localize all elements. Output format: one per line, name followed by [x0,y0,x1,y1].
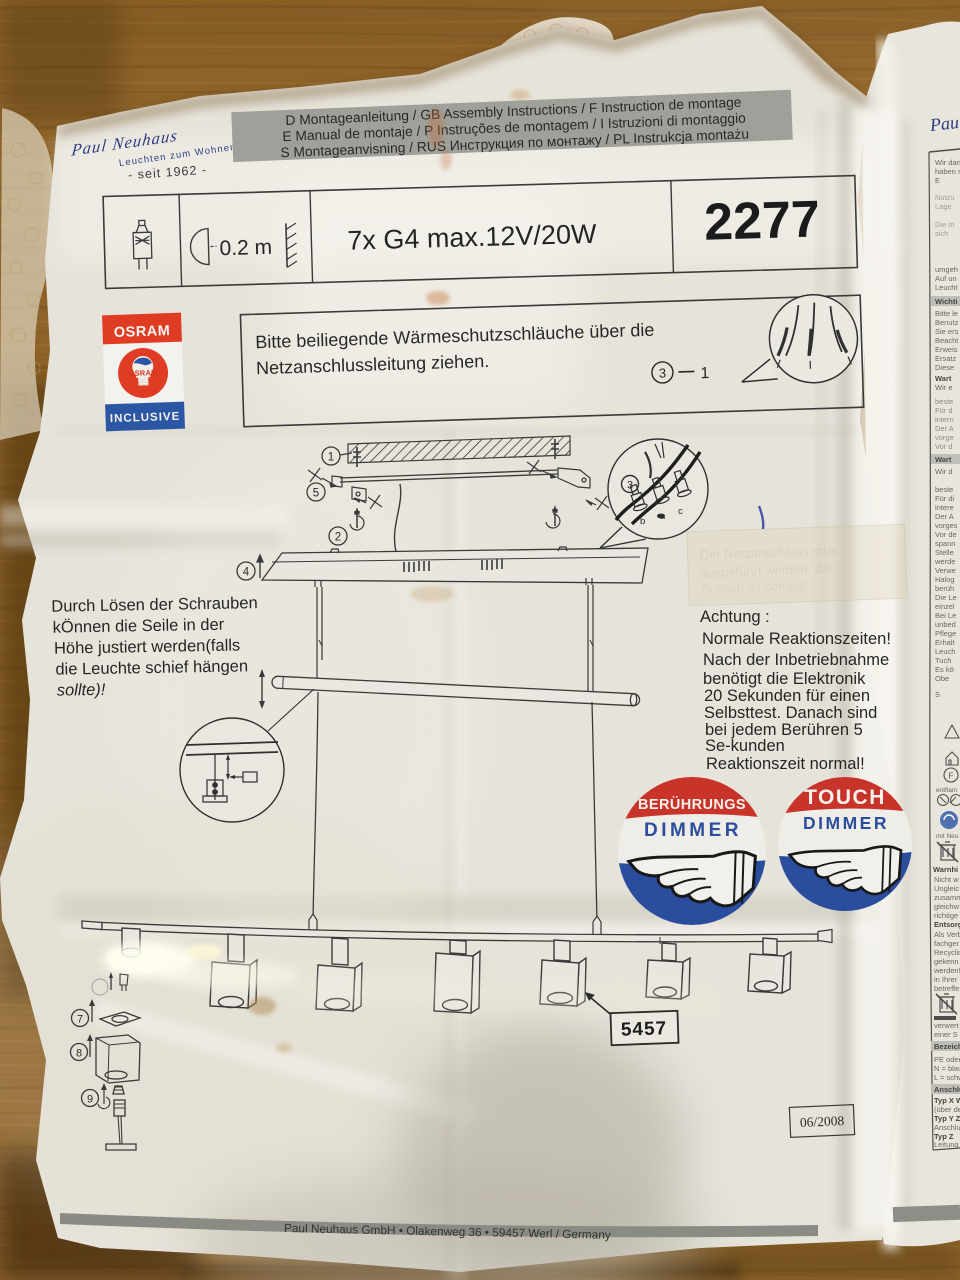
svg-text:c: c [678,506,683,517]
svg-text:2277: 2277 [703,191,820,252]
svg-text:Für d: Für d [935,406,953,415]
svg-text:berüh: berüh [935,584,954,593]
svg-text:1: 1 [700,365,710,382]
svg-text:Erhalt: Erhalt [935,638,956,647]
svg-text:Nach der Inbetriebnahme: Nach der Inbetriebnahme [703,651,889,669]
svg-text:Sie ers: Sie ers [935,327,959,336]
svg-text:OSRAM: OSRAM [114,323,171,341]
svg-text:Selbsttest. Danach sind: Selbsttest. Danach sind [704,704,877,722]
svg-text:Benutz: Benutz [935,318,959,327]
svg-text:vorge: vorge [935,433,954,442]
svg-text:spann: spann [935,539,955,548]
svg-text:S: S [935,690,940,699]
svg-text:einzel: einzel [935,602,955,611]
svg-text:intere: intere [935,503,954,512]
svg-text:Anschlu: Anschlu [934,1085,960,1094]
svg-text:Beacht: Beacht [935,336,959,345]
svg-text:haben s: haben s [935,167,960,176]
svg-text:OSRAM: OSRAM [128,368,157,378]
svg-text:Warnhi: Warnhi [933,865,958,874]
svg-text:betreffe: betreffe [934,984,959,993]
svg-text:Leitung: Leitung [934,1140,959,1149]
svg-text:7: 7 [77,1014,83,1026]
svg-text:8: 8 [76,1048,82,1060]
svg-text:fachger: fachger [934,939,960,948]
svg-text:Die Le: Die Le [935,593,957,602]
svg-text:Recyclin: Recyclin [934,948,960,957]
svg-text:Normale Reaktionszeiten!: Normale Reaktionszeiten! [702,630,891,648]
svg-text:Ersatz: Ersatz [935,354,957,363]
svg-text:verwert: verwert [934,1021,960,1030]
svg-text:Es kö: Es kö [935,665,954,674]
svg-text:Für di: Für di [935,494,955,503]
svg-text:Typ Y Z: Typ Y Z [934,1114,960,1123]
svg-text:Bitte le: Bitte le [935,309,958,318]
svg-text:Durch Lösen der Schrauben: Durch Lösen der Schrauben [51,594,258,616]
svg-text:Se-kunden: Se-kunden [705,737,785,755]
svg-text:b: b [640,516,645,527]
svg-text:Diese: Diese [935,363,954,372]
svg-text:zusamm: zusamm [934,893,960,902]
svg-text:3: 3 [659,365,667,380]
svg-text:Stelle: Stelle [935,548,954,557]
svg-text:Wart: Wart [935,374,952,383]
svg-text:Der A: Der A [935,512,954,521]
svg-text:benötigt die Elektronik: benötigt die Elektronik [703,670,866,688]
svg-text:2: 2 [335,532,341,544]
svg-text:Pau: Pau [928,112,960,135]
svg-text:werden!: werden! [933,966,960,975]
svg-text:beste: beste [935,397,953,406]
svg-text:DIMMER: DIMMER [803,813,889,833]
svg-text:Lage: Lage [935,202,952,211]
svg-text:entflam: entflam [936,787,957,794]
svg-text:9: 9 [87,1094,93,1106]
svg-text:Wart: Wart [935,455,952,464]
svg-text:beste: beste [935,485,953,494]
svg-text:Pflege: Pflege [935,629,956,638]
svg-text:Vor de: Vor de [935,530,957,539]
svg-text:sich: sich [935,229,948,238]
svg-text:Verwe: Verwe [935,566,956,575]
svg-text:mit Neu: mit Neu [936,833,959,840]
svg-text:Vor d: Vor d [935,442,953,451]
svg-text:(über de: (über de [934,1105,960,1114]
svg-text:Erweis: Erweis [935,345,958,354]
svg-text:Ungleic: Ungleic [934,884,959,893]
svg-text:Bezeich: Bezeich [934,1042,960,1051]
svg-text:Wir dan: Wir dan [935,158,960,167]
svg-text:in Ihrer: in Ihrer [934,975,958,984]
svg-text:1: 1 [328,452,334,464]
svg-text:F: F [949,772,954,781]
svg-text:20 Sekunden für einen: 20 Sekunden für einen [704,687,870,705]
svg-text:Halog: Halog [935,575,955,584]
svg-text:E: E [935,176,940,185]
svg-text:Leucht: Leucht [935,283,958,292]
svg-text:Nutzu: Nutzu [935,193,955,202]
svg-text:Achtung :: Achtung : [700,608,770,626]
svg-text:L = schw: L = schw [934,1073,960,1082]
svg-text:DIMMER: DIMMER [644,820,742,841]
svg-text:richtige: richtige [934,911,958,920]
svg-text:06/2008: 06/2008 [800,1113,845,1130]
svg-text:gleichw: gleichw [934,902,960,911]
svg-text:Tuch: Tuch [935,656,951,665]
svg-text:Auf un: Auf un [935,274,957,283]
svg-text:Die m: Die m [935,220,955,229]
svg-text:werde: werde [934,557,955,566]
svg-text:Wir d: Wir d [935,467,953,476]
svg-text:Bei Le: Bei Le [935,611,956,620]
svg-text:Als Verb: Als Verb [934,930,960,939]
svg-text:kÖnnen die Seile in der: kÖnnen die Seile in der [53,616,225,637]
svg-text:die Leuchte schief hängen: die Leuchte schief hängen [55,657,248,678]
svg-text:PE oder: PE oder [934,1055,960,1064]
svg-text:Entsorg: Entsorg [934,920,960,929]
svg-text:Wir e: Wir e [935,383,953,392]
svg-text:umgeh: umgeh [935,265,958,274]
svg-text:gekenn: gekenn [934,957,959,966]
svg-text:Höhe justiert werden(falls: Höhe justiert werden(falls [54,636,240,657]
svg-text:einer S: einer S [934,1030,958,1039]
svg-text:Wichti: Wichti [935,297,957,306]
svg-text:N = blau: N = blau [934,1064,960,1073]
svg-text:0.2 m: 0.2 m [219,236,272,260]
svg-text:vorges: vorges [935,521,958,530]
svg-text:Anschlu: Anschlu [934,1123,960,1132]
svg-text:Obe: Obe [935,674,949,683]
svg-text:4: 4 [243,567,250,579]
svg-text:Reaktionszeit normal!: Reaktionszeit normal! [706,755,865,773]
svg-text:intern: intern [935,415,954,424]
svg-text:5: 5 [313,488,319,500]
svg-text:TOUCH: TOUCH [804,786,886,809]
svg-text:BERÜHRUNGS: BERÜHRUNGS [638,796,746,813]
svg-text:unbed: unbed [935,620,956,629]
svg-text:Nicht w: Nicht w [934,875,959,884]
svg-text:Der A: Der A [935,424,954,433]
svg-text:5457: 5457 [621,1018,668,1041]
svg-text:Typ X W: Typ X W [934,1096,960,1105]
svg-text:Leuch: Leuch [935,647,955,656]
svg-text:INCLUSIVE: INCLUSIVE [110,411,181,425]
svg-text:sollte)!: sollte)! [57,681,106,700]
